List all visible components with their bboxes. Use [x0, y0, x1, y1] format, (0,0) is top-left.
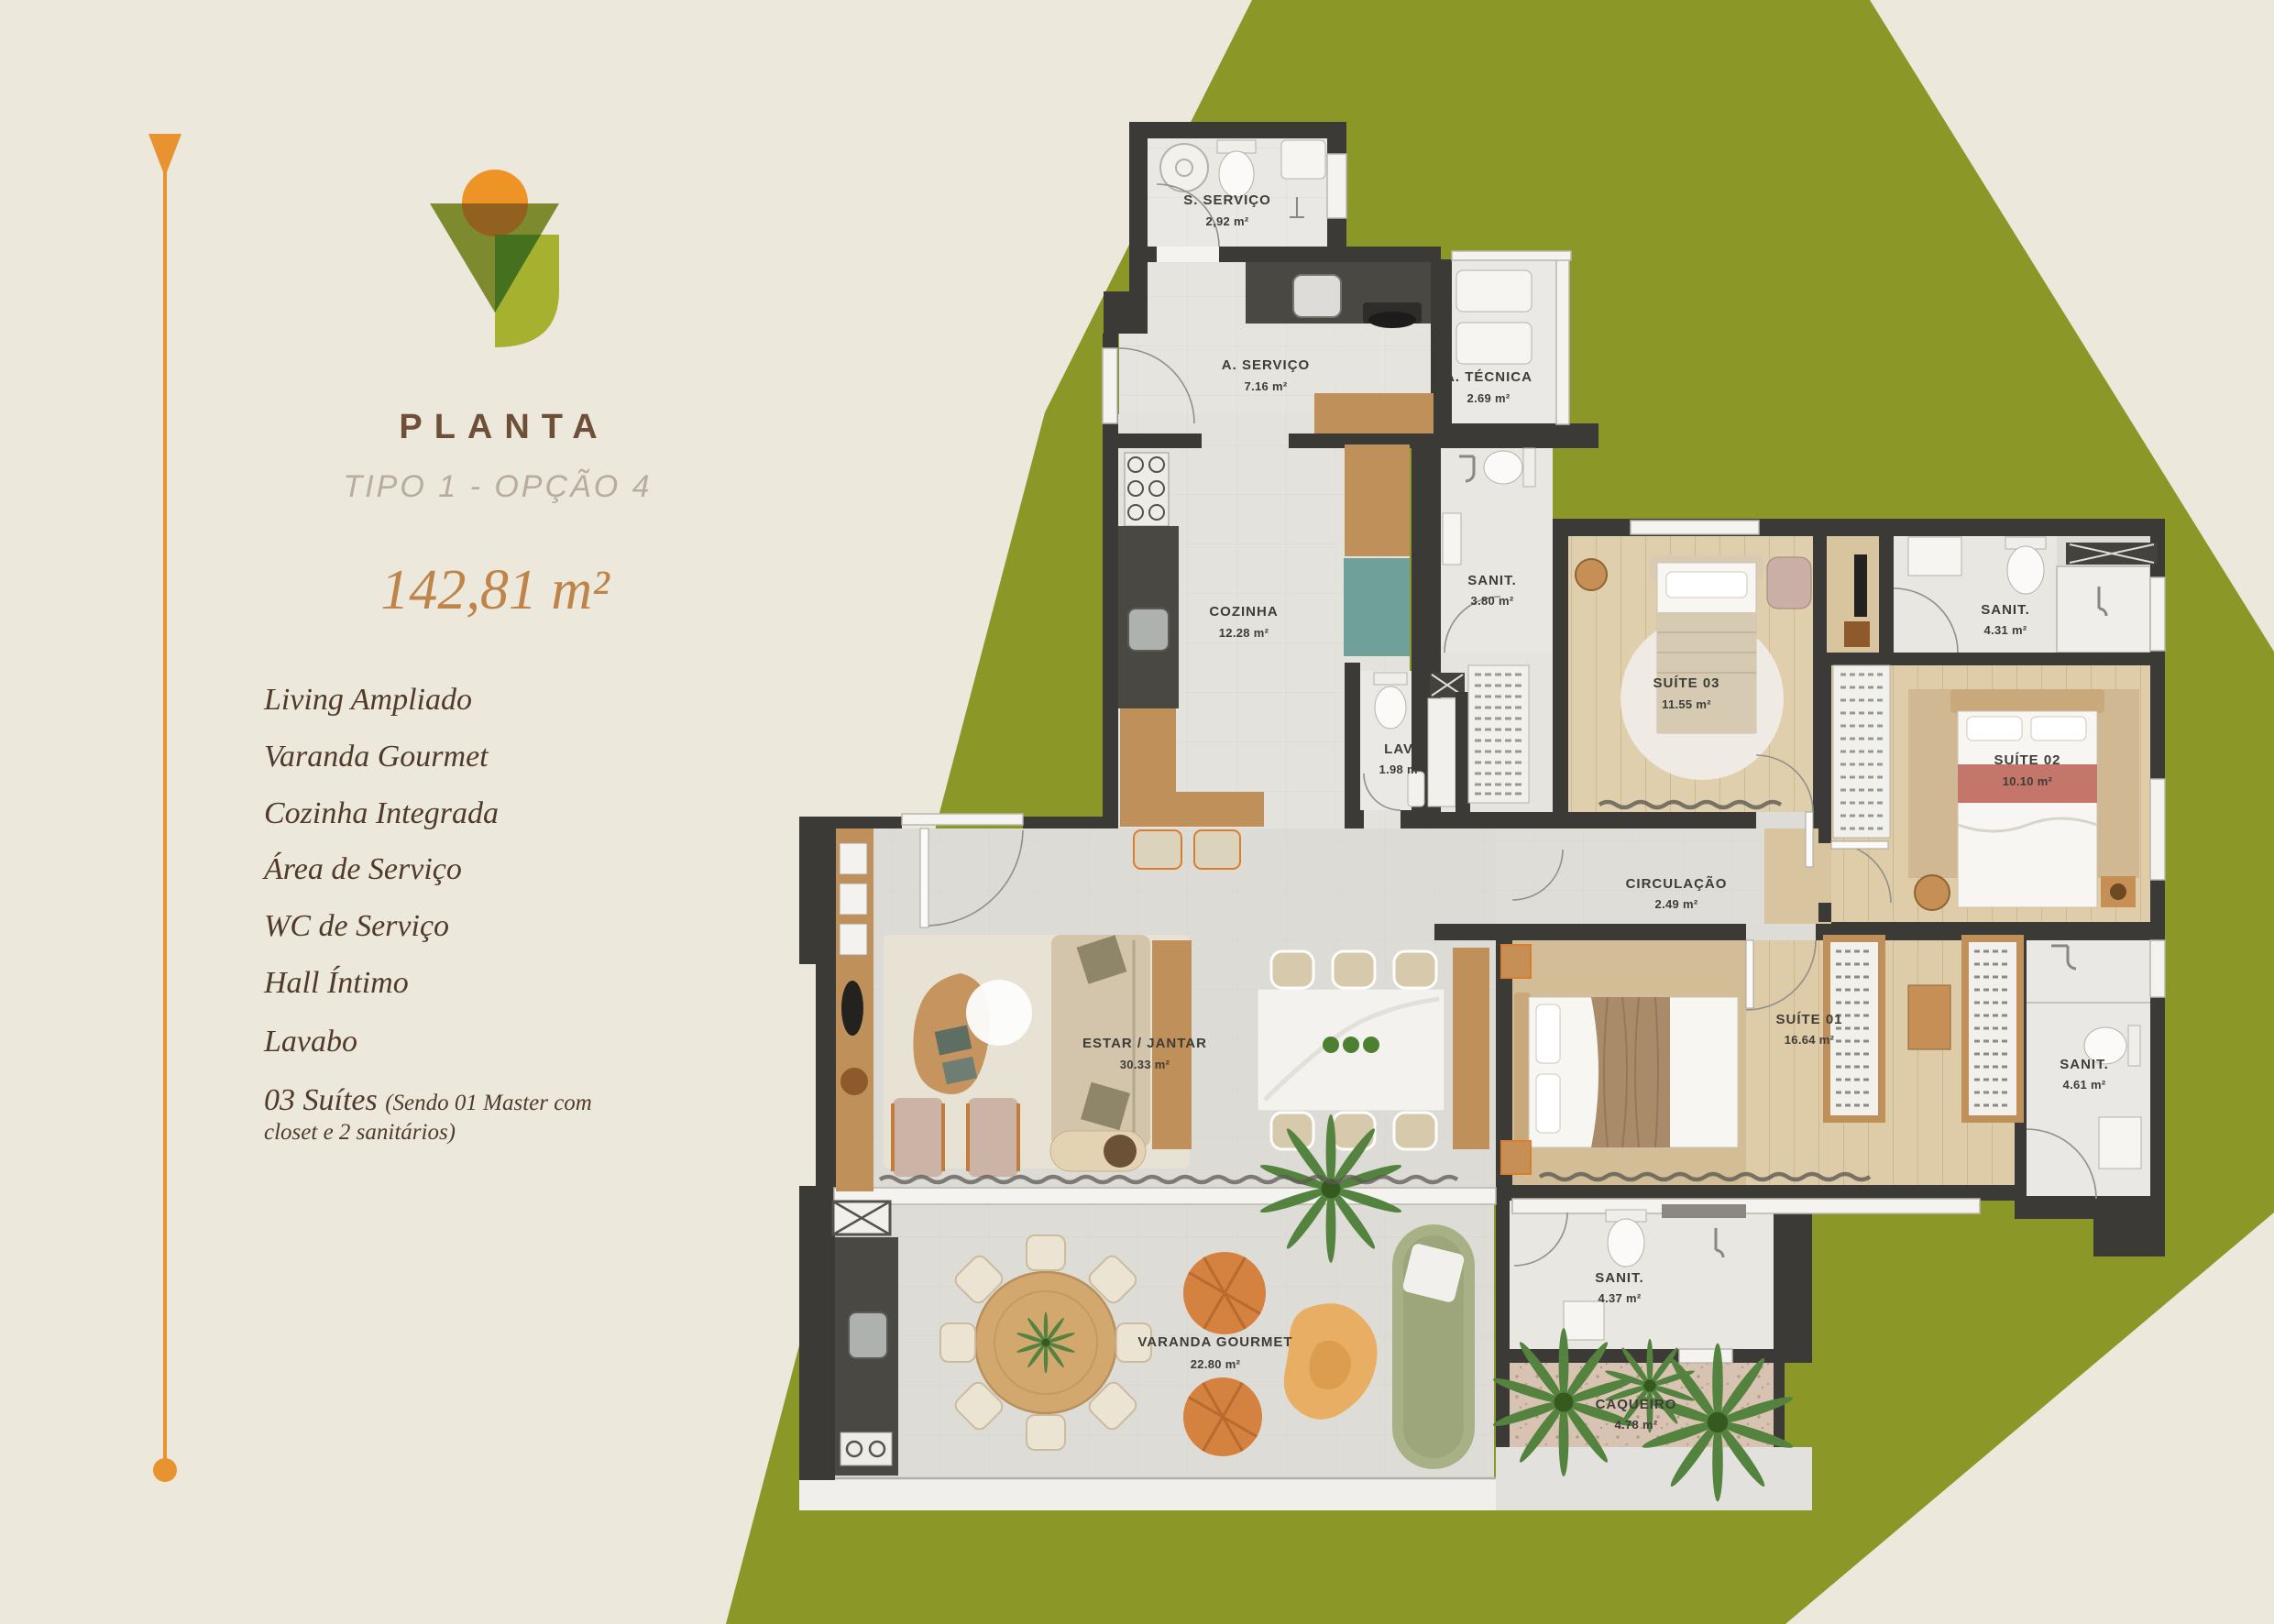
- svg-text:CAQUEIRO: CAQUEIRO: [1596, 1397, 1677, 1412]
- svg-text:SANIT.: SANIT.: [1467, 573, 1517, 588]
- svg-text:Cozinha Integrada: Cozinha Integrada: [264, 796, 499, 830]
- svg-text:Área de Serviço: Área de Serviço: [262, 852, 462, 886]
- svg-text:SANIT.: SANIT.: [1595, 1270, 1644, 1286]
- svg-text:CIRCULAÇÃO: CIRCULAÇÃO: [1626, 875, 1728, 892]
- svg-text:2.69 m²: 2.69 m²: [1467, 391, 1511, 405]
- svg-text:4.37 m²: 4.37 m²: [1598, 1291, 1642, 1305]
- svg-text:22.80 m²: 22.80 m²: [1191, 1357, 1241, 1371]
- svg-text:A. TÉCNICA: A. TÉCNICA: [1445, 369, 1532, 385]
- svg-text:SANIT.: SANIT.: [2060, 1057, 2109, 1072]
- svg-text:TIPO 1 - OPÇÃO 4: TIPO 1 - OPÇÃO 4: [343, 469, 652, 504]
- svg-text:4.61 m²: 4.61 m²: [2063, 1078, 2106, 1092]
- svg-text:Living Ampliado: Living Ampliado: [263, 683, 472, 717]
- svg-text:SANIT.: SANIT.: [1981, 602, 2030, 618]
- svg-text:Hall Íntimo: Hall Íntimo: [263, 966, 409, 1000]
- svg-text:142,81 m²: 142,81 m²: [380, 559, 610, 621]
- svg-text:COZINHA: COZINHA: [1209, 604, 1278, 620]
- svg-text:3.80 m²: 3.80 m²: [1471, 594, 1514, 608]
- svg-text:4.78 m²: 4.78 m²: [1615, 1418, 1658, 1432]
- svg-text:LAV.: LAV.: [1384, 741, 1417, 757]
- svg-text:VARANDA GOURMET: VARANDA GOURMET: [1137, 1334, 1292, 1350]
- svg-text:30.33 m²: 30.33 m²: [1120, 1058, 1170, 1071]
- svg-text:SUÍTE 01: SUÍTE 01: [1775, 1012, 1842, 1027]
- svg-text:12.28 m²: 12.28 m²: [1219, 626, 1269, 640]
- svg-text:4.31 m²: 4.31 m²: [1984, 623, 2027, 637]
- svg-text:SUÍTE 03: SUÍTE 03: [1653, 675, 1719, 691]
- svg-text:PLANTA: PLANTA: [399, 408, 609, 446]
- svg-text:10.10 m²: 10.10 m²: [2003, 774, 2053, 788]
- svg-text:2,92 m²: 2,92 m²: [1206, 214, 1249, 228]
- svg-text:7.16 m²: 7.16 m²: [1245, 379, 1288, 393]
- svg-text:1.98 m²: 1.98 m²: [1379, 763, 1423, 776]
- svg-text:2.49 m²: 2.49 m²: [1655, 897, 1698, 911]
- svg-text:ESTAR / JANTAR: ESTAR / JANTAR: [1082, 1036, 1207, 1051]
- svg-text:WC de Serviço: WC de Serviço: [264, 909, 449, 943]
- svg-text:11.55 m²: 11.55 m²: [1662, 697, 1711, 711]
- svg-text:Lavabo: Lavabo: [263, 1025, 357, 1059]
- svg-text:Varanda Gourmet: Varanda Gourmet: [264, 740, 489, 774]
- svg-text:A. SERVIÇO: A. SERVIÇO: [1222, 357, 1310, 373]
- svg-text:SUÍTE 02: SUÍTE 02: [1994, 752, 2060, 768]
- svg-text:closet e 2 sanitários): closet e 2 sanitários): [264, 1120, 456, 1145]
- svg-text:16.64 m²: 16.64 m²: [1785, 1033, 1835, 1047]
- svg-text:S. SERVIÇO: S. SERVIÇO: [1183, 192, 1271, 208]
